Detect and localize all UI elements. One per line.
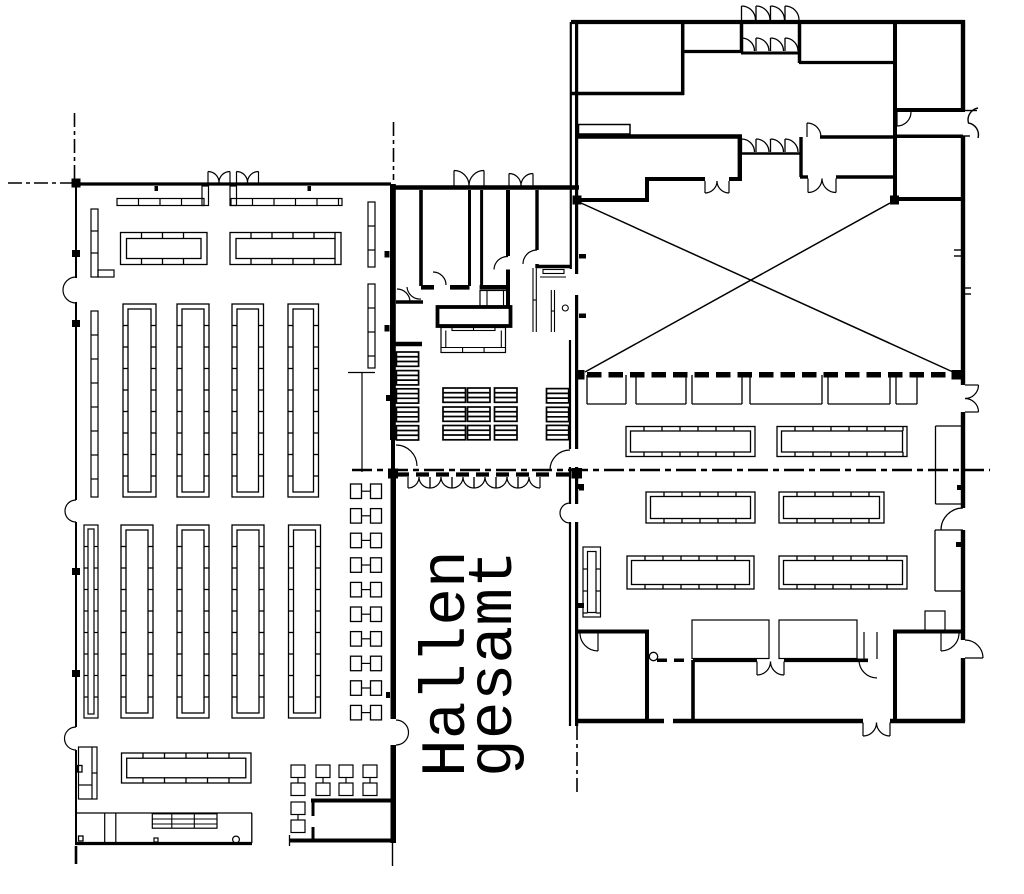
svg-text:gesamt: gesamt xyxy=(459,550,530,777)
